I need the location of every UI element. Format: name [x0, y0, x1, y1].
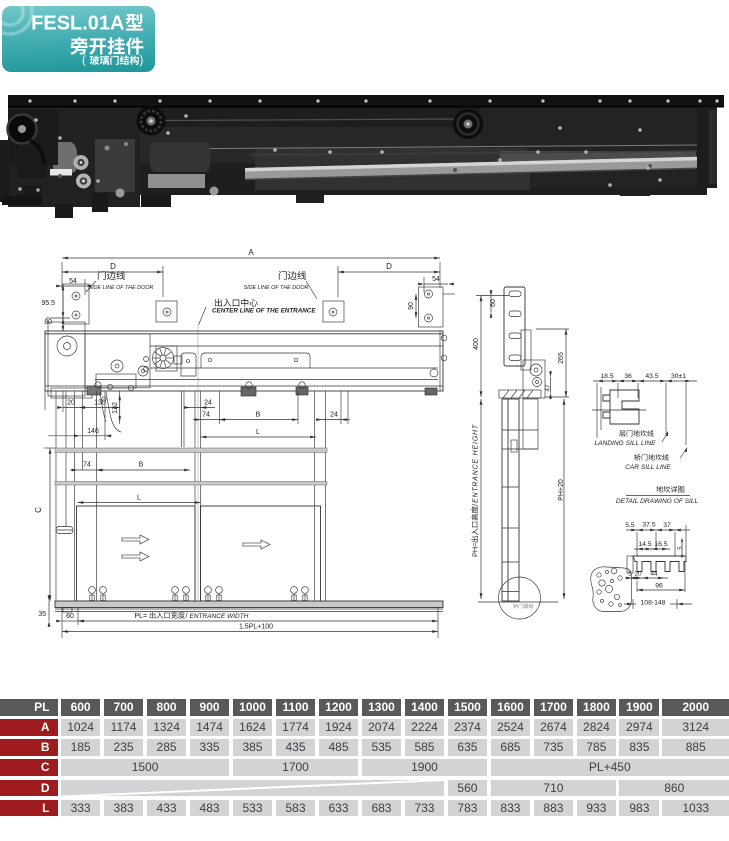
- svg-text:265: 265: [558, 352, 565, 364]
- svg-text:SIDE LINE OF THE DOOR: SIDE LINE OF THE DOOR: [244, 285, 309, 291]
- svg-text:90: 90: [408, 302, 415, 310]
- svg-text:B: B: [139, 462, 144, 469]
- svg-text:SIDE LINE OF THE DOOR: SIDE LINE OF THE DOOR: [89, 285, 154, 291]
- svg-text:20: 20: [67, 400, 75, 407]
- svg-text:130: 130: [94, 400, 106, 407]
- svg-text:24: 24: [330, 412, 338, 419]
- svg-text:122: 122: [112, 402, 119, 414]
- svg-text:D: D: [386, 262, 392, 271]
- svg-text:54: 54: [432, 276, 440, 283]
- svg-text:16.5: 16.5: [654, 541, 667, 548]
- svg-text:74: 74: [83, 462, 91, 469]
- svg-text:B: B: [256, 412, 261, 419]
- svg-text:60: 60: [490, 299, 497, 307]
- svg-text:A: A: [248, 248, 254, 257]
- svg-text:FESL.01A: FESL.01A: [31, 13, 124, 35]
- svg-text:1.5PL+100: 1.5PL+100: [239, 624, 273, 631]
- svg-text:D: D: [110, 262, 116, 271]
- svg-text:20: 20: [634, 571, 642, 578]
- svg-text:47: 47: [545, 384, 552, 392]
- svg-text:37: 37: [663, 522, 671, 529]
- svg-text:24: 24: [204, 400, 212, 407]
- svg-text:PH=: PH=: [471, 542, 480, 557]
- svg-text:PH+20: PH+20: [558, 479, 565, 501]
- svg-text:96: 96: [655, 583, 663, 590]
- svg-text:ENTRANCE WIDTH: ENTRANCE WIDTH: [190, 613, 249, 620]
- svg-text:L: L: [137, 495, 141, 502]
- svg-text:35: 35: [38, 611, 46, 618]
- svg-text:DETAIL DRAWING OF SILL: DETAIL DRAWING OF SILL: [616, 498, 699, 505]
- svg-text:108-148: 108-148: [641, 600, 666, 607]
- svg-text:CAR SILL LINE: CAR SILL LINE: [625, 464, 671, 471]
- svg-text:18.5: 18.5: [600, 373, 613, 380]
- svg-text:L: L: [256, 429, 260, 436]
- svg-text:30±1: 30±1: [671, 373, 686, 380]
- svg-text:PL=: PL=: [135, 613, 148, 620]
- svg-text:95.5: 95.5: [41, 300, 55, 307]
- svg-text:60: 60: [66, 613, 74, 620]
- svg-text:C: C: [34, 507, 43, 513]
- svg-text:): ): [140, 55, 144, 67]
- svg-text:5: 5: [677, 546, 684, 550]
- svg-text:36: 36: [624, 373, 632, 380]
- svg-text:146: 146: [87, 428, 99, 435]
- svg-text:5.5: 5.5: [625, 522, 635, 529]
- svg-text:14.5: 14.5: [638, 541, 651, 548]
- svg-text:74: 74: [202, 412, 210, 419]
- svg-text:43.5: 43.5: [645, 373, 658, 380]
- svg-text:37.5: 37.5: [642, 522, 655, 529]
- svg-text:ENTRANCE HEIGHT: ENTRANCE HEIGHT: [473, 424, 480, 503]
- svg-text:LANDING SILL LINE: LANDING SILL LINE: [594, 440, 656, 447]
- svg-text:(: (: [82, 55, 86, 67]
- svg-text:/: /: [186, 613, 188, 620]
- svg-text:CENTER LINE OF THE ENTRANCE: CENTER LINE OF THE ENTRANCE: [212, 307, 316, 314]
- svg-text:44: 44: [650, 571, 658, 578]
- svg-text:80: 80: [44, 319, 52, 326]
- svg-text:400: 400: [473, 338, 480, 350]
